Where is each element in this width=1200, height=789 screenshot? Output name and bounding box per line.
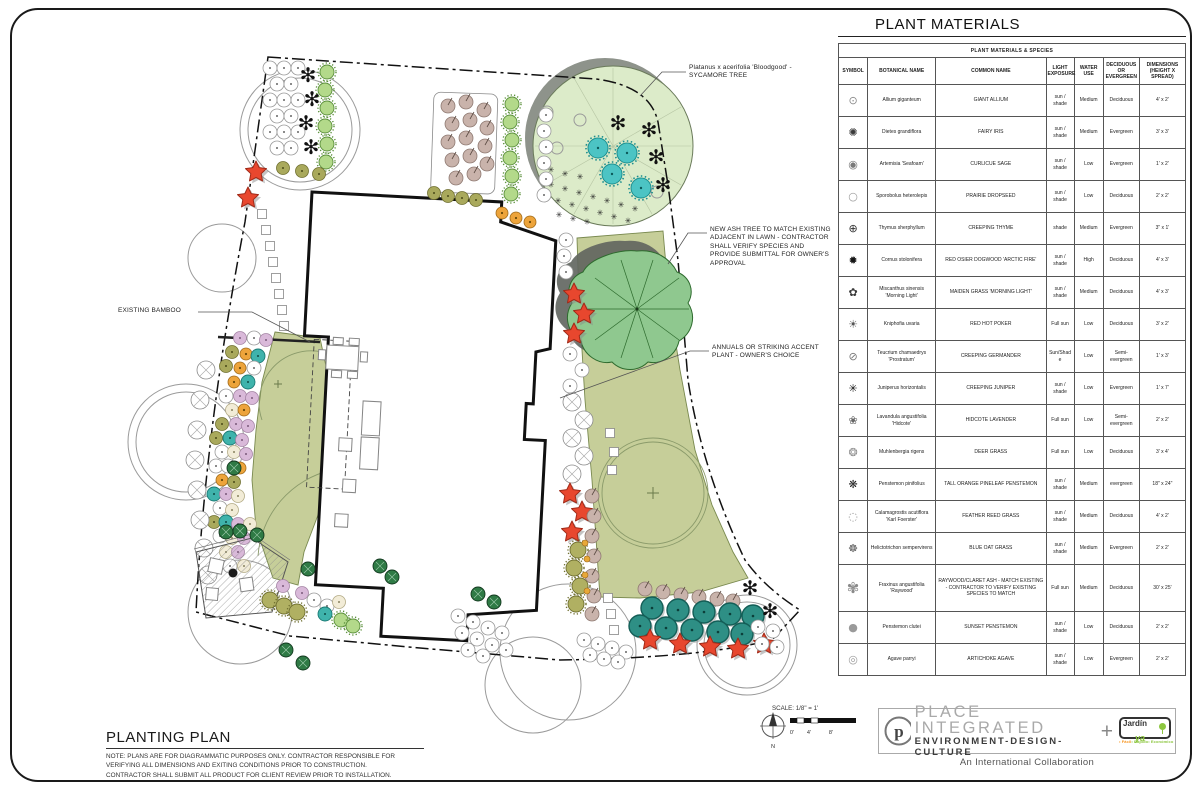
light-exposure: sun / shade [1046,612,1074,644]
light-exposure: sun / shade [1046,149,1074,181]
common-name: FEATHER REED GRASS [936,501,1046,533]
deciduous-evergreen: Deciduous [1103,437,1139,469]
water-use: Low [1074,612,1103,644]
collaboration-logo-box: p PLACE INTEGRATED ENVIRONMENT-DESIGN-CU… [878,708,1176,754]
table-subtitle: PLANT MATERIALS & SPECIES [839,44,1186,58]
botanical-name: Calamagrostis acutiflora 'Karl Foerster' [868,501,936,533]
plant-symbol-cell [839,245,868,277]
deciduous-evergreen: Evergreen [1103,149,1139,181]
scale-0: 0' [790,730,794,736]
plant-row: Penstemon pinifoliusTALL ORANGE PINELEAF… [839,469,1186,501]
water-use: Low [1074,437,1103,469]
scale-label: SCALE: 1/8" = 1' [772,705,818,712]
botanical-name: Sporobolus heterolepis [868,181,936,213]
common-name: PRAIRIE DROPSEED [936,181,1046,213]
plant-row: Allium giganteumGIANT ALLIUMsun / shadeM… [839,85,1186,117]
title-block: PLANTING PLAN NOTE: PLANS ARE FOR DIAGRA… [106,729,436,780]
light-exposure: sun / shade [1046,501,1074,533]
penstemon-sunset-icon [848,621,858,634]
water-use: Medium [1074,117,1103,149]
dimensions: 3' x 3' [1139,117,1185,149]
dimensions: 2' x 2' [1139,612,1185,644]
plant-symbol-cell [839,341,868,373]
common-name: SUNSET PENSTEMON [936,612,1046,644]
plant-row: Fraxinus angustifolia 'Raywood'RAYWOOD/C… [839,565,1186,612]
plant-row: Miscanthus sinensis 'Morning Light'MAIDE… [839,277,1186,309]
botanical-name: Juniperus horizontalis [868,373,936,405]
light-exposure: sun / shade [1046,644,1074,676]
dimensions: 3" x 1' [1139,213,1185,245]
light-exposure: sun / shade [1046,85,1074,117]
water-use: Low [1074,405,1103,437]
light-exposure: Full sun [1046,405,1074,437]
common-name: RED HOT POKER [936,309,1046,341]
water-use: High [1074,245,1103,277]
water-use: Low [1074,309,1103,341]
water-use: Medium [1074,501,1103,533]
botanical-name: Muhlenbergia rigens [868,437,936,469]
col-botanical: BOTANICAL NAME [868,58,936,85]
plant-symbol-cell [839,565,868,612]
light-exposure: sun / shade [1046,277,1074,309]
water-use: Medium [1074,469,1103,501]
plant-row: Lavandula angustifolia 'Hidcote'HIDCOTE … [839,405,1186,437]
light-exposure: sun / shade [1046,117,1074,149]
common-name: CURLICUE SAGE [936,149,1046,181]
plant-symbol-cell [839,85,868,117]
allium-icon [848,94,857,107]
north-label: N [771,744,775,750]
lavandula-icon [848,414,857,427]
plant-row: Agave parryiARTICHOKE AGAVEsun / shadeLo… [839,644,1186,676]
common-name: MAIDEN GRASS 'MORNING LIGHT' [936,277,1046,309]
botanical-name: Artemisia 'Seafoam' [868,149,936,181]
artemisia-icon [848,158,858,171]
botanical-name: Dietes grandiflora [868,117,936,149]
annotation-bamboo: EXISTING BAMBOO [118,307,208,315]
plant-symbol-cell [839,213,868,245]
water-use: Low [1074,373,1103,405]
jardin-ya-logo: Jardínya • Fácil• Rápido• Económico [1119,717,1171,745]
dimensions: 2' x 2' [1139,644,1185,676]
common-name: CREEPING JUNIPER [936,373,1046,405]
common-name: GIANT ALLIUM [936,85,1046,117]
cornus-icon [848,254,857,267]
common-name: TALL ORANGE PINELEAF PENSTEMON [936,469,1046,501]
botanical-name: Agave parryi [868,644,936,676]
botanical-name: Fraxinus angustifolia 'Raywood' [868,565,936,612]
col-type: DECIDUOUS OR EVERGREEN [1103,58,1139,85]
water-use: Low [1074,644,1103,676]
penstemon-pine-icon [848,478,857,491]
sheet-title: PLANTING PLAN [106,729,424,749]
deciduous-evergreen: Deciduous [1103,501,1139,533]
ya-word: ya [1135,733,1145,743]
deciduous-evergreen: Deciduous [1103,309,1139,341]
scale-bar: SCALE: 1/8" = 1' 0' 4' 8' [772,705,856,736]
sporobolus-icon [848,190,858,203]
light-exposure: Full sun [1046,437,1074,469]
plant-symbol-cell [839,181,868,213]
calamagrostis-icon [848,510,858,523]
botanical-name: Penstemon pinifolius [868,469,936,501]
plant-symbol-cell [839,277,868,309]
dimensions: 1' x 2' [1139,149,1185,181]
light-exposure: Sun/Shade [1046,341,1074,373]
plant-symbol-cell [839,533,868,565]
plant-row: Artemisia 'Seafoam'CURLICUE SAGEsun / sh… [839,149,1186,181]
plus-sign: + [1101,721,1113,742]
botanical-name: Lavandula angustifolia 'Hidcote' [868,405,936,437]
common-name: CREEPING GERMANDER [936,341,1046,373]
plant-row: Sporobolus heterolepisPRAIRIE DROPSEEDsu… [839,181,1186,213]
scale-4: 4' [807,730,811,736]
plant-row: Muhlenbergia rigensDEER GRASSFull sunLow… [839,437,1186,469]
dimensions: 4' x 2' [1139,501,1185,533]
common-name: RED OSIER DOGWOOD 'ARCTIC FIRE' [936,245,1046,277]
brand-name: PLACE INTEGRATED [915,704,1093,737]
botanical-name: Kniphofia uvaria [868,309,936,341]
annotation-sycamore: Platanus x acerifolia 'Bloodgood' - SYCA… [689,64,817,81]
dimensions: 4' x 3' [1139,245,1185,277]
dimensions: 3' x 4' [1139,437,1185,469]
kniphofia-icon [848,318,858,331]
plant-row: Cornus stoloniferaRED OSIER DOGWOOD 'ARC… [839,245,1186,277]
botanical-name: Helictotrichon sempervirens [868,533,936,565]
botanical-name: Allium giganteum [868,85,936,117]
plant-symbol-cell [839,469,868,501]
common-name: ARTICHOKE AGAVE [936,644,1046,676]
water-use: Low [1074,149,1103,181]
common-name: HIDCOTE LAVENDER [936,405,1046,437]
botanical-name: Cornus stolonifera [868,245,936,277]
deciduous-evergreen: Evergreen [1103,533,1139,565]
deciduous-evergreen: Evergreen [1103,644,1139,676]
plant-table-body: Allium giganteumGIANT ALLIUMsun / shadeM… [839,85,1186,676]
deciduous-evergreen: Deciduous [1103,85,1139,117]
dimensions: 2' x 2' [1139,181,1185,213]
water-use: Medium [1074,85,1103,117]
light-exposure: sun / shade [1046,245,1074,277]
plant-symbol-cell [839,612,868,644]
water-use: Medium [1074,565,1103,612]
light-exposure: sun / shade [1046,181,1074,213]
helictotrichon-icon [848,542,858,555]
plant-symbol-cell [839,501,868,533]
dimensions: 1' x 7' [1139,373,1185,405]
light-exposure: sun / shade [1046,373,1074,405]
common-name: DEER GRASS [936,437,1046,469]
dimensions: 4' x 2' [1139,85,1185,117]
botanical-name: Penstemon clutei [868,612,936,644]
water-use: Low [1074,341,1103,373]
deciduous-evergreen: Semi-evergreen [1103,405,1139,437]
plant-symbol-cell [839,437,868,469]
light-exposure: Full sun [1046,565,1074,612]
bulb-icon [1159,723,1166,730]
plant-materials-table: PLANT MATERIALS & SPECIES SYMBOL BOTANIC… [838,43,1186,676]
dimensions: 18" x 24" [1139,469,1185,501]
light-exposure: shade [1046,213,1074,245]
light-exposure: sun / shade [1046,469,1074,501]
annotation-annuals: ANNUALS OR STRIKING ACCENT PLANT - OWNER… [712,344,824,361]
teucrium-icon [848,350,857,363]
deciduous-evergreen: Deciduous [1103,181,1139,213]
col-dims: DIMENSIONS (HEIGHT X SPREAD) [1139,58,1185,85]
deciduous-evergreen: Deciduous [1103,612,1139,644]
plant-row: Teucrium chamaedrys 'Prostratum'CREEPING… [839,341,1186,373]
plant-row: Dietes grandifloraFAIRY IRISsun / shadeM… [839,117,1186,149]
plant-row: Juniperus horizontalisCREEPING JUNIPERsu… [839,373,1186,405]
plant-row: Helictotrichon sempervirensBLUE OAT GRAS… [839,533,1186,565]
deciduous-evergreen: Evergreen [1103,373,1139,405]
deciduous-evergreen: Deciduous [1103,245,1139,277]
plant-row: Kniphofia uvariaRED HOT POKERFull sunLow… [839,309,1186,341]
deciduous-evergreen: evergreen [1103,469,1139,501]
dimensions: 2' x 2' [1139,405,1185,437]
plant-symbol-cell [839,644,868,676]
dimensions: 30' x 25' [1139,565,1185,612]
dimensions: 2' x 2' [1139,533,1185,565]
plant-symbol-cell [839,309,868,341]
fraxinus-icon [847,583,860,596]
col-water: WATER USE [1074,58,1103,85]
scale-8: 8' [829,730,833,736]
deciduous-evergreen: Deciduous [1103,277,1139,309]
dimensions: 1' x 3' [1139,341,1185,373]
water-use: Medium [1074,277,1103,309]
place-integrated-logo-icon: p [883,715,911,747]
botanical-name: Miscanthus sinensis 'Morning Light' [868,277,936,309]
col-symbol: SYMBOL [839,58,868,85]
collaboration-caption: An International Collaboration [878,757,1176,768]
botanical-name: Thymus sherphyllum [868,213,936,245]
botanical-name: Teucrium chamaedrys 'Prostratum' [868,341,936,373]
brand-subtitle: ENVIRONMENT-DESIGN-CULTURE [915,737,1093,759]
deciduous-evergreen: Deciduous [1103,565,1139,612]
plant-materials-panel: PLANT MATERIALS PLANT MATERIALS & SPECIE… [838,16,1186,676]
north-arrow-icon: N [760,712,786,750]
light-exposure: Full sun [1046,309,1074,341]
water-use: Medium [1074,213,1103,245]
deciduous-evergreen: Evergreen [1103,213,1139,245]
plant-symbol-cell [839,117,868,149]
thymus-icon [848,222,857,235]
water-use: Low [1074,181,1103,213]
plant-row: Calamagrostis acutiflora 'Karl Foerster'… [839,501,1186,533]
dimensions: 3' x 2' [1139,309,1185,341]
common-name: RAYWOOD/CLARET ASH - MATCH EXISTING - CO… [936,565,1046,612]
svg-text:p: p [894,722,903,741]
planting-plan-sheet: ✻ ✳ [0,0,1200,789]
common-name: CREEPING THYME [936,213,1046,245]
dimensions: 4' x 3' [1139,277,1185,309]
plant-materials-title: PLANT MATERIALS [838,16,1186,37]
miscanthus-icon [848,286,857,299]
muhlenbergia-icon [848,446,857,459]
light-exposure: sun / shade [1046,533,1074,565]
deciduous-evergreen: Semi-evergreen [1103,341,1139,373]
house-footprint [289,192,558,644]
sheet-note: NOTE: PLANS ARE FOR DIAGRAMMATIC PURPOSE… [106,752,406,780]
water-use: Medium [1074,533,1103,565]
plant-symbol-cell [839,373,868,405]
plant-row: Penstemon cluteiSUNSET PENSTEMONsun / sh… [839,612,1186,644]
deciduous-evergreen: Evergreen [1103,117,1139,149]
agave-icon [848,653,858,666]
col-light: LIGHT EXPOSURE [1046,58,1074,85]
col-common: COMMON NAME [936,58,1046,85]
juniperus-icon [848,382,857,395]
plant-row: Thymus sherphyllumCREEPING THYMEshadeMed… [839,213,1186,245]
common-name: FAIRY IRIS [936,117,1046,149]
plant-symbol-cell [839,149,868,181]
dietes-icon [848,126,857,139]
annotation-ash: NEW ASH TREE TO MATCH EXISTING ADJACENT … [710,226,832,268]
common-name: BLUE OAT GRASS [936,533,1046,565]
plant-symbol-cell [839,405,868,437]
